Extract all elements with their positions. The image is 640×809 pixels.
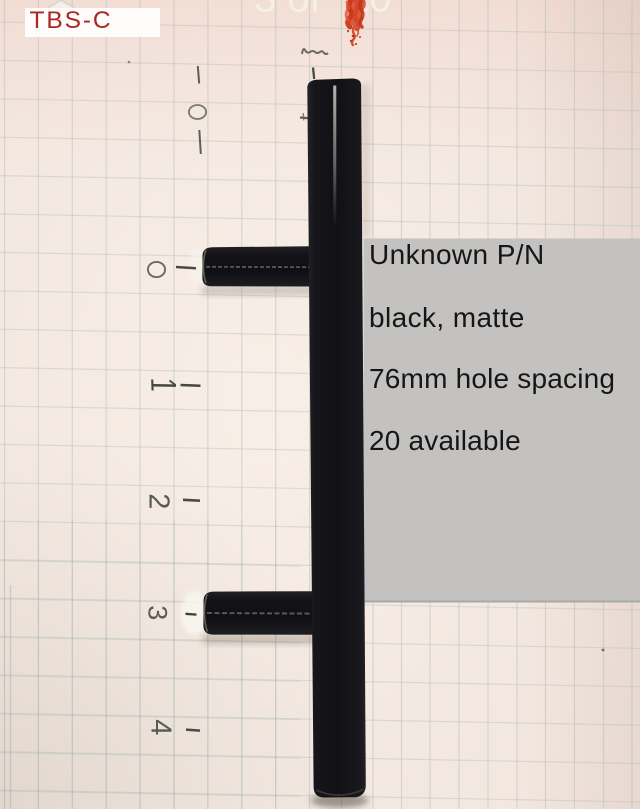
svg-text:4: 4 [145,719,177,735]
svg-text:3: 3 [143,605,173,620]
svg-text:2: 2 [143,493,175,509]
svg-text:3 of: 3 of [254,0,322,21]
